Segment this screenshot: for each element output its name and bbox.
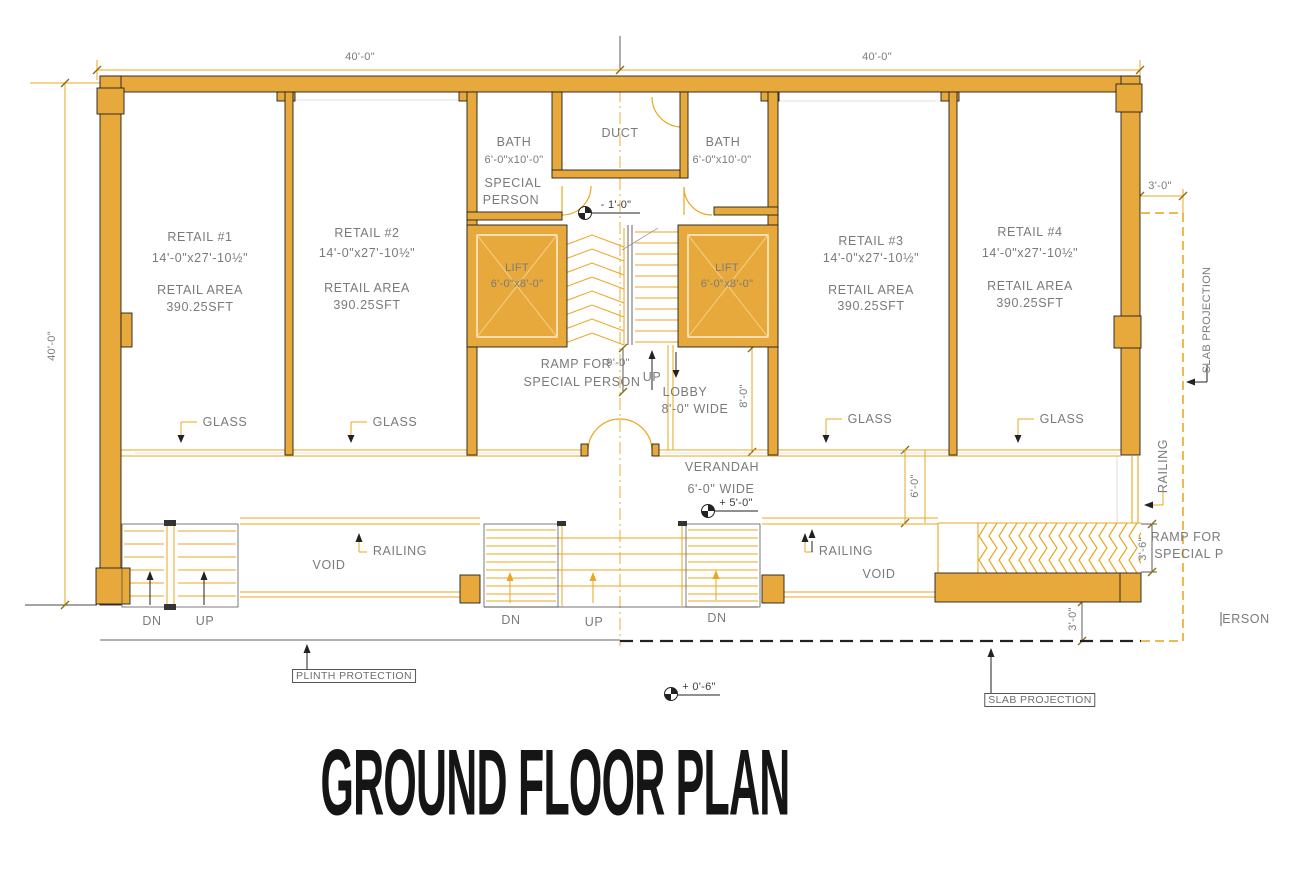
ramp-center-line2: SPECIAL PERSON (524, 375, 641, 389)
stair-outlines (122, 524, 760, 607)
void-label-2: VOID (863, 567, 896, 581)
thin-glass-lines (135, 100, 1118, 523)
entrance-stair (486, 525, 758, 606)
lobby-name: LOBBY (663, 385, 708, 399)
bath-right-name: BATH (706, 135, 741, 149)
bath-left-size: 6'-0"x10'-0" (484, 154, 543, 166)
up-label-1: UP (196, 614, 215, 628)
retail4-size: 14'-0"x27'-10½" (982, 246, 1078, 260)
glass-label-4: GLASS (1040, 412, 1085, 426)
retail2-area: 390.25SFT (333, 298, 400, 312)
retail3-name: RETAIL #3 (838, 234, 903, 248)
level-ground: + 0'-6" (682, 681, 715, 693)
dim-verandah-depth: 6'-0" (909, 474, 921, 497)
level-verandah: + 5'-0" (719, 497, 752, 509)
bath-left-note1: SPECIAL (484, 176, 541, 190)
glass-label-3: GLASS (848, 412, 893, 426)
ramp-center-line1: RAMP FOR (541, 357, 612, 371)
verandah-size: 6'-0" WIDE (688, 482, 755, 496)
retail4-area: 390.25SFT (996, 296, 1063, 310)
slab-projection-callout: SLAB PROJECTION (984, 693, 1095, 707)
dim-slab-offset-top: 3'-0" (1148, 180, 1171, 192)
lift-right-size: 6'-0"x8'-0" (701, 278, 754, 290)
dim-top-left: 40'-0" (345, 51, 375, 63)
slab-projection-dashed (1141, 213, 1183, 641)
dn-label-2: DN (501, 613, 520, 627)
glass-label-1: GLASS (203, 415, 248, 429)
retail4-name: RETAIL #4 (997, 225, 1062, 239)
retail3-area: 390.25SFT (837, 299, 904, 313)
lobby-size: 8'-0" WIDE (662, 402, 729, 416)
void-label-1: VOID (313, 558, 346, 572)
level-entry-landing: - 1'-0" (601, 199, 632, 211)
dim-left-side: 40'-0" (46, 331, 58, 361)
retail2-name: RETAIL #2 (334, 226, 399, 240)
bath-right-size: 6'-0"x10'-0" (692, 154, 751, 166)
glass-label-2: GLASS (373, 415, 418, 429)
retail1-size: 14'-0"x27'-10½" (152, 251, 248, 265)
left-external-stair (124, 523, 236, 608)
ramp-right-line1: RAMP FOR (1151, 530, 1222, 544)
lift-right-name: LIFT (715, 262, 739, 274)
lift-left-size: 6'-0"x8'-0" (491, 278, 544, 290)
retail2-area-label: RETAIL AREA (324, 281, 410, 295)
dn-label-3: DN (707, 611, 726, 625)
dim-top-right: 40'-0" (862, 51, 892, 63)
dim-lobby-depth: 8'-0" (738, 384, 750, 407)
sheet-title: GROUND FLOOR PLAN (320, 729, 789, 838)
railing-label-2: RAILING (819, 544, 873, 558)
bath-left-note2: PERSON (483, 193, 539, 207)
ground-floor-plan-sheet: 40'-0" 40'-0" 40'-0" 3'-0" 3'-0" 3'-6" 6… (0, 0, 1311, 882)
retail1-area-label: RETAIL AREA (157, 283, 243, 297)
railing-label-right: RAILING (1156, 439, 1170, 493)
accessibility-ramp-hatch (938, 523, 1141, 573)
plinth-protection-callout: PLINTH PROTECTION (292, 669, 416, 683)
retail3-size: 14'-0"x27'-10½" (823, 251, 919, 265)
duct-label: DUCT (601, 126, 638, 140)
core-stair-ramp (560, 228, 678, 450)
bath-left-name: BATH (497, 135, 532, 149)
dim-ramp-right-width: 3'-6" (1137, 537, 1149, 560)
up-label-2: UP (585, 615, 604, 629)
dim-slab-offset-bottom: 3'-0" (1067, 607, 1079, 630)
slab-projection-label-right: SLAB PROJECTION (1201, 267, 1213, 374)
retail3-area-label: RETAIL AREA (828, 283, 914, 297)
lift-left-name: LIFT (505, 262, 529, 274)
verandah-name: VERANDAH (685, 460, 759, 474)
ramp-right-line2: SPECIAL P (1154, 547, 1224, 561)
ramp-right-line3: ERSON (1222, 612, 1269, 626)
retail1-area: 390.25SFT (166, 300, 233, 314)
retail2-size: 14'-0"x27'-10½" (319, 246, 415, 260)
dn-label-1: DN (142, 614, 161, 628)
retail4-area-label: RETAIL AREA (987, 279, 1073, 293)
retail1-name: RETAIL #1 (167, 230, 232, 244)
up-label-core: UP (643, 370, 662, 384)
railing-label-1: RAILING (373, 544, 427, 558)
